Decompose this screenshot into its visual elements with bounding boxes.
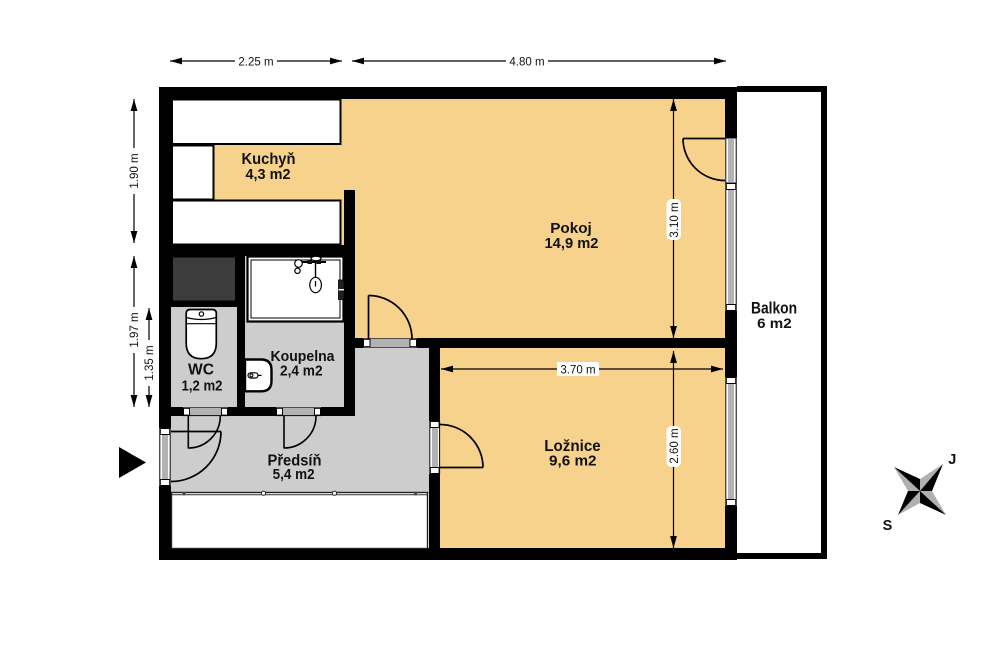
- svg-text:6 m2: 6 m2: [757, 315, 792, 331]
- svg-text:WC: WC: [188, 362, 214, 379]
- svg-text:Pokoj: Pokoj: [550, 220, 592, 237]
- svg-text:2.60 m: 2.60 m: [669, 428, 681, 463]
- svg-text:2,4 m2: 2,4 m2: [280, 363, 323, 379]
- svg-text:2.25 m: 2.25 m: [238, 57, 273, 69]
- svg-text:3.10 m: 3.10 m: [669, 202, 681, 237]
- svg-text:S: S: [883, 518, 893, 534]
- svg-text:4.80 m: 4.80 m: [509, 57, 544, 69]
- svg-text:Kuchyň: Kuchyň: [242, 151, 296, 168]
- svg-text:4,3 m2: 4,3 m2: [246, 167, 291, 183]
- svg-text:9,6 m2: 9,6 m2: [549, 453, 597, 469]
- svg-text:1,2 m2: 1,2 m2: [182, 379, 223, 395]
- svg-text:J: J: [948, 452, 956, 468]
- svg-text:1.97 m: 1.97 m: [129, 312, 141, 347]
- svg-text:1.35 m: 1.35 m: [144, 345, 156, 380]
- svg-text:14,9 m2: 14,9 m2: [545, 236, 599, 252]
- svg-text:3.70 m: 3.70 m: [560, 365, 595, 377]
- svg-text:1.90 m: 1.90 m: [129, 153, 141, 188]
- svg-text:5,4 m2: 5,4 m2: [273, 467, 315, 483]
